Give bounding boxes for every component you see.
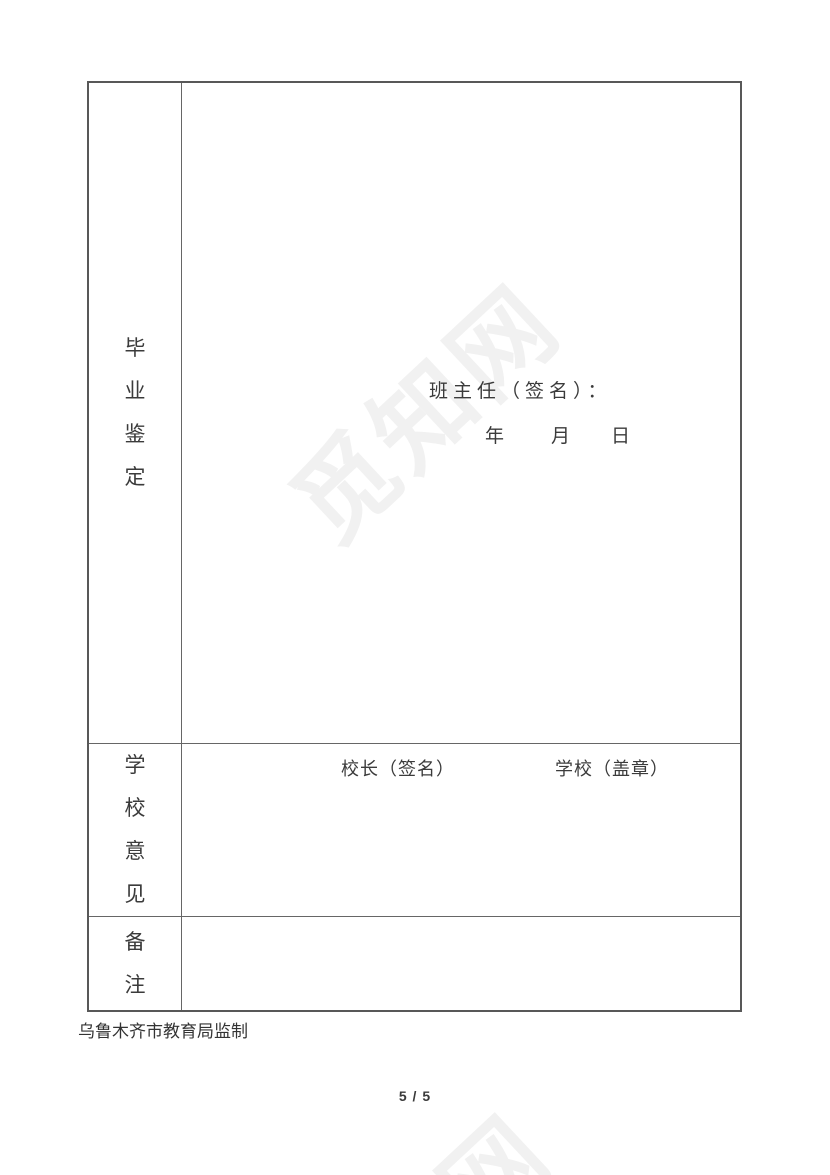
header-char: 备	[125, 921, 146, 964]
document-page: 觅知网 觅知网 毕 业 鉴 定 班主任（签名）： 年 月 日 学 校 意	[0, 0, 830, 1175]
header-char: 业	[125, 370, 146, 413]
table-row-remarks: 备 注	[89, 916, 740, 1010]
day-label: 日	[611, 421, 630, 448]
header-char: 见	[125, 873, 146, 916]
header-char: 毕	[125, 327, 146, 370]
cell-school-opinion-content: 校长（签名） 学校（盖章）	[182, 744, 740, 916]
header-char: 鉴	[125, 413, 146, 456]
header-char: 意	[125, 830, 146, 873]
month-label: 月	[551, 421, 570, 448]
header-char: 注	[125, 964, 146, 1007]
school-seal-label: 学校（盖章）	[555, 755, 669, 781]
header-char: 校	[125, 787, 146, 830]
page-indicator: 5 / 5	[0, 1088, 830, 1104]
header-char: 学	[125, 744, 146, 787]
cell-graduation-appraisal-content: 班主任（签名）： 年 月 日	[182, 83, 740, 743]
cell-remarks-content	[182, 917, 740, 1010]
appraisal-form-table: 毕 业 鉴 定 班主任（签名）： 年 月 日 学 校 意 见 校长（签名）	[87, 81, 742, 1012]
row-header-remarks: 备 注	[89, 917, 182, 1010]
principal-signature-label: 校长（签名）	[341, 755, 455, 781]
row-header-school-opinion: 学 校 意 见	[89, 744, 182, 916]
issuer-note: 乌鲁木齐市教育局监制	[78, 1017, 248, 1042]
header-char: 定	[125, 456, 146, 499]
year-label: 年	[485, 421, 504, 448]
row-header-graduation-appraisal: 毕 业 鉴 定	[89, 83, 182, 743]
teacher-signature-label: 班主任（签名）：	[429, 376, 612, 403]
watermark-text-partial: 觅知网	[264, 1096, 574, 1175]
table-row-graduation-appraisal: 毕 业 鉴 定 班主任（签名）： 年 月 日	[89, 83, 740, 743]
table-row-school-opinion: 学 校 意 见 校长（签名） 学校（盖章）	[89, 743, 740, 916]
